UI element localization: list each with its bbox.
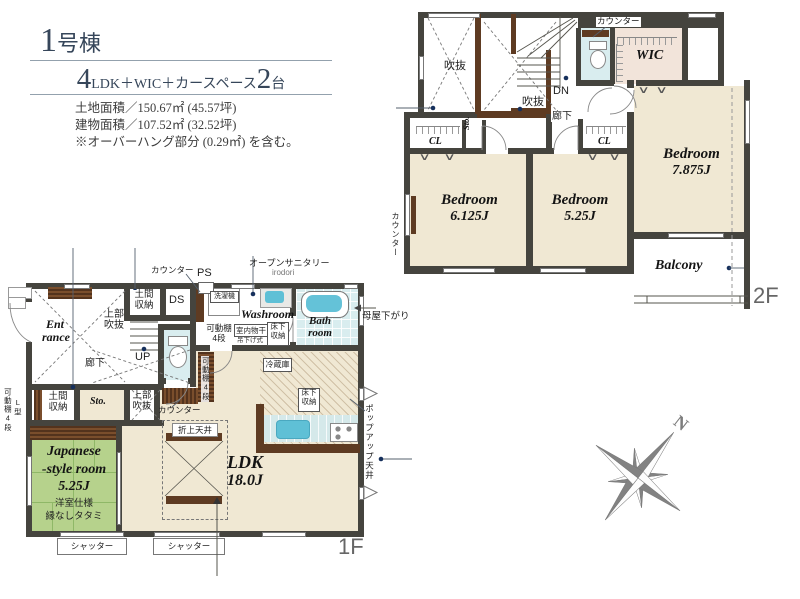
overhang-note: ※オーバーハング部分 (0.29㎡) を含む。: [75, 134, 299, 151]
building-suffix: 号棟: [57, 31, 101, 56]
window: [419, 56, 424, 80]
f1-floor-storage-box: 床下 収納: [267, 322, 289, 346]
bath-line1: Bath: [300, 315, 340, 327]
window: [231, 284, 255, 289]
window-counter: [411, 196, 416, 234]
area-info: 土地面積／150.67㎡ (45.57坪) 建物面積／107.52㎡ (32.5…: [75, 100, 299, 151]
toilet-tank-icon: [589, 41, 607, 50]
entrance-line1: Ent: [46, 318, 70, 331]
jp-note2: 縁なしタタミ: [30, 511, 118, 524]
wall: [160, 287, 166, 318]
f2-cl-left-label: CL: [429, 136, 442, 147]
window: [428, 13, 480, 18]
floor-storage-line2: 収納: [268, 332, 288, 341]
wall: [718, 12, 724, 86]
f1-doma-lower-label: 土間 収納: [44, 392, 72, 413]
wall: [190, 345, 210, 351]
f1-floor-label: 1F: [338, 535, 364, 560]
f1-sto-label: Sto.: [90, 396, 106, 407]
plan-mid: LDK＋WIC＋カースペース: [91, 77, 257, 92]
f2-bedroom2-label: Bedroom 5.25J: [536, 192, 624, 224]
room-size: 5.25J: [536, 209, 624, 225]
f1-doma-upper-label: 土間 収納: [130, 290, 158, 311]
wall: [627, 80, 634, 88]
f1-upper-void2-label: 上部 吹抜: [128, 391, 156, 412]
closet-hanger-marks: [416, 126, 460, 134]
vanity-sink-icon: [265, 291, 284, 303]
floor-storage-line2: 収納: [299, 398, 319, 407]
f2-balcony-label: Balcony: [655, 258, 702, 274]
room-size: 7.875J: [644, 163, 739, 179]
jp-room-wood-deck: [30, 426, 118, 440]
f1-bathroom-label: Bath room: [300, 315, 340, 340]
closet-mark: ∨: [586, 152, 598, 163]
entrance-line2: rance: [42, 331, 70, 344]
land-area: 土地面積／150.67㎡ (45.57坪): [75, 100, 299, 117]
f2-wic-label: WIC: [636, 48, 663, 64]
shutter-label: シャッター: [168, 541, 211, 551]
closet-hanger-marks: [586, 126, 626, 134]
stove-icon: [330, 423, 358, 442]
room-name: Bedroom: [536, 192, 624, 209]
jp-line2: -style room: [30, 461, 118, 479]
f2-counter-left-label: カウンター: [390, 212, 399, 257]
wall: [188, 378, 196, 384]
wall: [576, 28, 581, 86]
closet-mark: ∨: [443, 152, 455, 163]
floor-plan-page: 1号棟 4LDK＋WIC＋カースペース2台 土地面積／150.67㎡ (45.5…: [0, 0, 800, 599]
toilet-bowl-icon: [590, 50, 606, 69]
f2-bedroom3-label: Bedroom 7.875J: [644, 146, 739, 178]
compass-north-label: N: [670, 411, 693, 435]
plan-count-car: 2: [257, 63, 272, 95]
window: [60, 532, 124, 537]
shutter-label: シャッター: [71, 541, 114, 551]
wall: [158, 324, 164, 384]
shelf-line2: 4段: [204, 334, 234, 344]
closet-mark: ∨: [608, 152, 620, 163]
wall: [482, 120, 486, 154]
compass-rose: N: [558, 398, 718, 558]
entrance-door-opening: [26, 302, 32, 342]
plan-tail: 台: [271, 77, 285, 92]
stair-wall-wood: [546, 50, 551, 114]
f1-shelf-label: 可動棚 4段: [204, 324, 234, 343]
window: [359, 487, 364, 500]
f2-sto-label: Sto.: [462, 117, 472, 130]
f1-irodori-label: irodori: [272, 269, 294, 278]
wall: [232, 345, 364, 351]
building-number: 1: [40, 22, 57, 59]
bathtub-water-icon: [306, 295, 342, 312]
window: [405, 194, 410, 236]
wall: [404, 266, 634, 274]
f1-entrance-label: Ent rance: [46, 318, 70, 345]
room-size: 6.125J: [422, 209, 517, 225]
bath-line2: room: [300, 327, 340, 339]
indoor-drying-label: 室内物干: [236, 326, 266, 335]
window: [359, 388, 364, 401]
ldk-size: 18.0J: [210, 472, 280, 490]
room-name: Bedroom: [644, 146, 739, 163]
window: [668, 233, 724, 238]
jp-line1: Japanese: [30, 443, 118, 461]
upper-void-line2: 吹抜: [128, 402, 156, 413]
wall: [578, 119, 583, 154]
wall: [526, 148, 533, 272]
f1-japanese-room-label: Japanese -style room 5.25J: [30, 443, 118, 496]
wall: [627, 112, 634, 272]
header-rule-bottom: [30, 94, 332, 95]
header-rule-top: [30, 60, 332, 61]
wall: [682, 28, 688, 84]
wall: [290, 342, 296, 351]
shutter-box: シャッター: [57, 538, 127, 555]
f1-popup-ceiling-label: ポップアップ天井: [364, 404, 374, 480]
wall: [404, 112, 410, 274]
closet-mark: ∨: [637, 85, 649, 96]
doma-line2: 収納: [130, 301, 158, 312]
window: [64, 284, 90, 289]
window: [540, 268, 586, 273]
shutter-box: シャッター: [153, 538, 225, 555]
window: [344, 284, 358, 289]
f2-counter-top-label: カウンター: [596, 17, 641, 27]
window: [443, 268, 495, 273]
f1-ldk-label: LDK 18.0J: [210, 452, 280, 490]
doma-line2: 収納: [44, 403, 72, 414]
f2-cl-right-label: CL: [598, 136, 611, 147]
f1-fridge-box: 冷蔵庫: [263, 358, 292, 372]
f1-japanese-room-note: 洋室仕様 縁なしタタミ: [30, 498, 118, 524]
plan-count-ldk: 4: [77, 63, 92, 95]
fridge-label: 冷蔵庫: [266, 360, 290, 369]
kitchen-sink-icon: [276, 420, 310, 439]
wall: [610, 28, 615, 84]
window: [154, 532, 220, 537]
window: [688, 13, 716, 18]
f1-washer-label-box: 洗濯機: [210, 291, 239, 303]
f1-indoor-drying-box: 室内物干: [234, 324, 268, 337]
coffered-beam: [166, 496, 222, 504]
f1-up-label: UP: [135, 351, 150, 363]
f1-ds-label: DS: [169, 294, 184, 306]
f1-coffered-label-box: 折上天井: [172, 423, 218, 437]
window: [262, 532, 306, 537]
toilet-counter: [582, 30, 609, 37]
wall: [124, 315, 196, 321]
jp-line3: 5.25J: [30, 478, 118, 496]
ldk-name: LDK: [210, 452, 280, 472]
wall: [74, 384, 80, 422]
f2-hall-label: 廊下: [551, 111, 573, 122]
stair-wall-wood: [475, 14, 481, 114]
closet-mark: ∨: [655, 85, 667, 96]
f1-washroom-label: Washroom: [241, 308, 294, 321]
f1-pantry-shelf-label: 可動棚4段: [201, 356, 209, 402]
f1-open-sanitary-label: オープンサニタリー: [249, 258, 329, 268]
jp-note1: 洋室仕様: [30, 498, 118, 511]
building-title: 1号棟: [40, 22, 101, 60]
closet-mark: ∨: [418, 152, 430, 163]
f1-counter-top-label: カウンター: [151, 266, 194, 276]
f1-upper-void-label: 上部 吹抜: [98, 309, 130, 331]
f1-indoor-drying-sub: 吊下げ式: [237, 337, 263, 344]
window: [745, 100, 750, 144]
toilet-tank-icon: [168, 336, 188, 346]
coffered-label: 折上天井: [178, 425, 212, 435]
building-area: 建物面積／107.52㎡ (32.52坪): [75, 117, 299, 134]
wic-hanger-rail: [617, 37, 677, 45]
toilet-bowl-icon: [169, 346, 187, 368]
stair-wall-wood: [511, 14, 516, 54]
f1-ps-label: PS: [197, 267, 212, 279]
f2-void2-label: 吹抜: [522, 96, 544, 108]
f2-void1-label: 吹抜: [444, 60, 466, 72]
f2-floor-label: 2F: [753, 284, 779, 309]
f1-hall-label: 廊下: [85, 358, 105, 369]
f2-dn-label: DN: [553, 85, 569, 97]
wall: [744, 239, 750, 309]
stair-wall-wood: [511, 108, 551, 114]
upper-void-line2: 吹抜: [98, 320, 130, 331]
f1-moya-label: 母屋下がり: [362, 312, 410, 323]
f2-bedroom1-label: Bedroom 6.125J: [422, 192, 517, 224]
porch-step: [8, 297, 26, 309]
f1-l-type-label: L型: [13, 398, 21, 417]
doma-shelf: [34, 390, 42, 420]
plan-type: 4LDK＋WIC＋カースペース2台: [30, 63, 332, 95]
f1-kitchen-floor-storage-box: 床下 収納: [298, 388, 320, 412]
room-name: Bedroom: [422, 192, 517, 209]
f1-left-shelf-label: 可動棚4段: [3, 388, 11, 432]
kitchen-counter-wood: [162, 388, 198, 404]
wall: [578, 80, 614, 86]
washer-label: 洗濯機: [214, 293, 235, 300]
f1-counter-mid-label: カウンター: [158, 406, 201, 416]
wic-shelf-marks: [616, 44, 623, 82]
upper-void-line1: 上部: [98, 309, 130, 320]
